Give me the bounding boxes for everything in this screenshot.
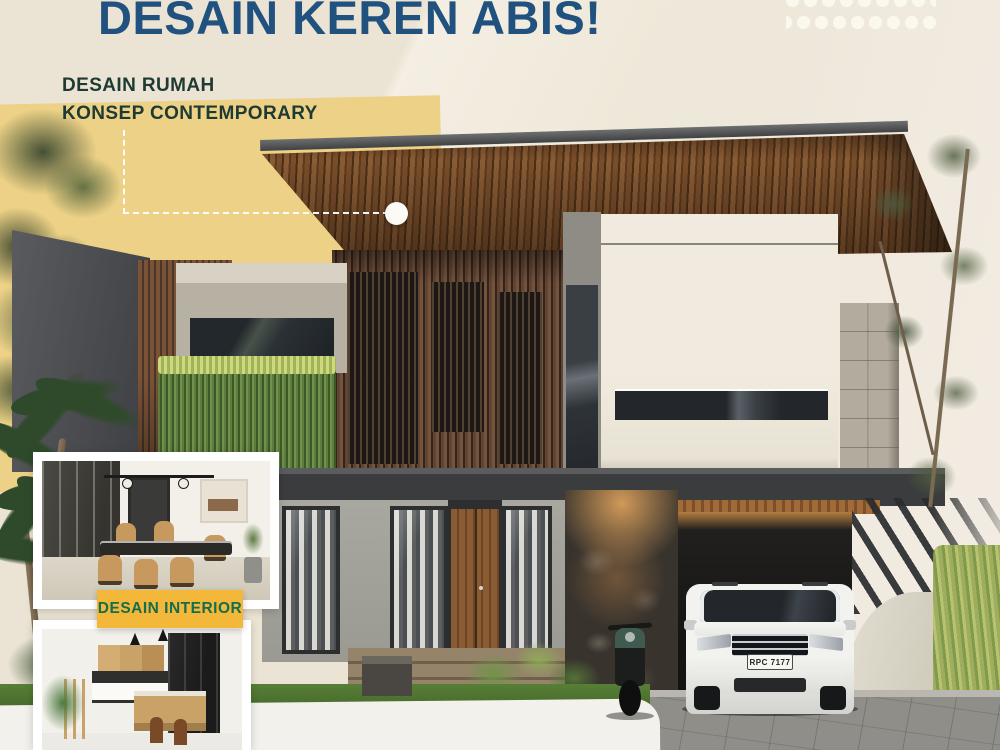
kitchen-island-bar [134, 691, 206, 731]
interior-photo-kitchen [33, 620, 251, 750]
bar-stool [174, 719, 187, 745]
dining-table [100, 541, 232, 555]
subtitle-line-1: DESAIN RUMAH [62, 72, 318, 100]
interior-badge: DESAIN INTERIOR [97, 590, 243, 628]
car-grille [732, 634, 808, 656]
ground-window [390, 506, 448, 654]
dining-plant-pot [244, 557, 262, 583]
tree-right [845, 118, 1000, 568]
license-plate: RPC 7177 [747, 654, 793, 670]
ground-window [502, 506, 552, 654]
ground-window [282, 506, 340, 654]
callout-line-horizontal [123, 212, 389, 214]
suv-car: RPC 7177 [686, 584, 854, 714]
dining-chair [98, 555, 122, 585]
poster: RPC 7177 [0, 0, 1000, 750]
car-wheel [694, 686, 720, 710]
car-wheel [820, 686, 846, 710]
motorcycle [604, 616, 656, 718]
dots-grid-logo-icon [786, 0, 936, 36]
upper-window-slit [615, 389, 828, 420]
kitchen-photo [42, 629, 242, 750]
interior-badge-label: DESAIN INTERIOR [98, 600, 242, 618]
roof-rail [712, 582, 738, 586]
dining-chair [170, 557, 194, 587]
stone-planter-cube [362, 656, 412, 696]
upper-floor-volume [601, 214, 838, 480]
dining-chair [134, 559, 158, 589]
motorcycle-wheel [619, 680, 641, 716]
subtitle-line-2: KONSEP CONTEMPORARY [62, 100, 318, 128]
kitchen-counter [92, 671, 168, 683]
car-windshield [700, 590, 840, 622]
slat-window [348, 272, 418, 464]
pendant-lamp [158, 629, 168, 641]
wood-slat-facade [332, 250, 563, 492]
roof-rail [802, 582, 828, 586]
slat-window [498, 292, 542, 464]
bar-stool [150, 717, 163, 743]
subtitle: DESAIN RUMAH KONSEP CONTEMPORARY [62, 72, 318, 128]
callout-marker-dot [385, 202, 408, 225]
dining-room-photo [42, 461, 270, 600]
column-glass [566, 285, 598, 487]
kitchen-plant [42, 665, 92, 741]
glass-column [563, 212, 601, 492]
dining-plant [238, 517, 268, 561]
hedge-right [933, 545, 1000, 695]
headline: DESAIN KEREN ABIS! [98, 0, 601, 45]
pendant-lamp [130, 633, 140, 645]
car-bumper-intake [734, 678, 806, 692]
pendant-lamp [104, 475, 214, 478]
kitchen-upper-cabinets [98, 645, 164, 671]
callout-line-vertical [123, 130, 125, 214]
slat-window [432, 282, 484, 432]
motorcycle-headlight [625, 632, 635, 642]
interior-photo-dining [33, 452, 279, 609]
wing-parapet [176, 263, 347, 283]
